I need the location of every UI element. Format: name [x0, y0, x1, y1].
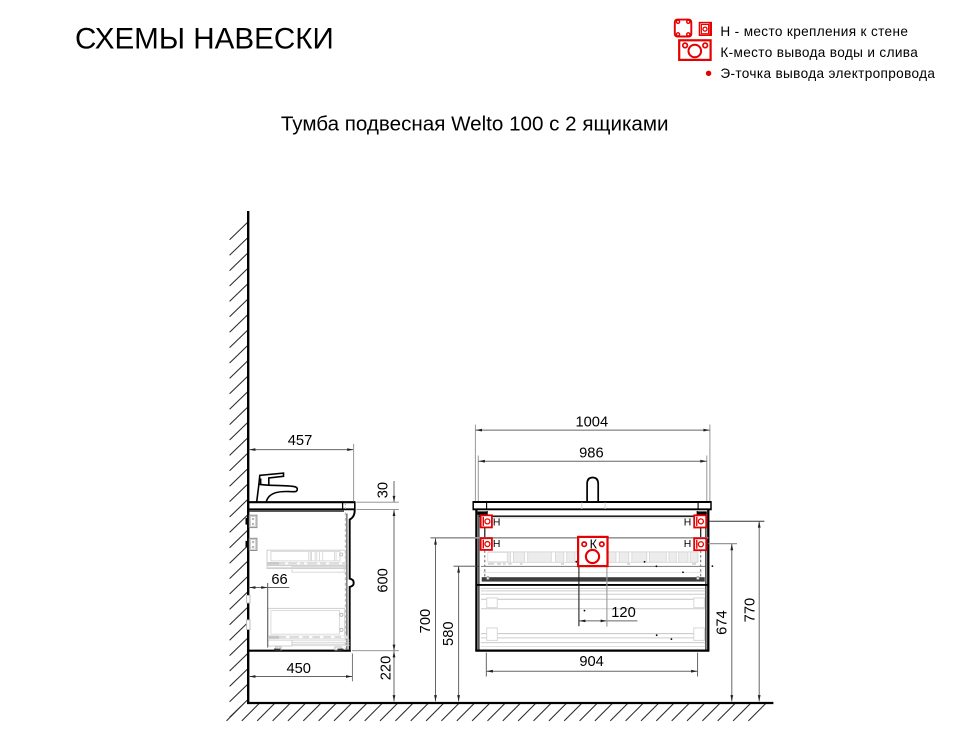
svg-text:Н: Н	[684, 539, 692, 550]
svg-text:674: 674	[715, 610, 731, 635]
svg-text:220: 220	[378, 656, 394, 681]
svg-text:Тумба подвесная Welto 100 с 2: Тумба подвесная Welto 100 с 2 ящиками	[281, 112, 669, 135]
svg-text:770: 770	[742, 598, 758, 623]
svg-text:700: 700	[418, 609, 434, 634]
svg-text:Н: Н	[493, 518, 501, 529]
svg-text:Н: Н	[684, 518, 692, 529]
svg-text:120: 120	[611, 605, 636, 621]
svg-text:457: 457	[288, 433, 313, 449]
svg-text:К-место вывода воды и слива: К-место вывода воды и слива	[720, 45, 918, 60]
svg-text:450: 450	[286, 661, 311, 677]
svg-text:Н: Н	[493, 539, 501, 550]
svg-text:580: 580	[441, 621, 457, 646]
svg-text:Н - место крепления к стене: Н - место крепления к стене	[720, 24, 908, 39]
svg-text:30: 30	[376, 482, 392, 498]
svg-text:904: 904	[579, 654, 604, 670]
svg-text:К: К	[590, 538, 598, 552]
svg-text:СХЕМЫ НАВЕСКИ: СХЕМЫ НАВЕСКИ	[75, 23, 334, 56]
svg-text:1004: 1004	[575, 414, 608, 430]
svg-text:Э-точка вывода электропровода: Э-точка вывода электропровода	[720, 66, 935, 81]
svg-text:986: 986	[579, 446, 604, 462]
svg-text:600: 600	[375, 568, 391, 593]
svg-text:66: 66	[271, 572, 287, 588]
